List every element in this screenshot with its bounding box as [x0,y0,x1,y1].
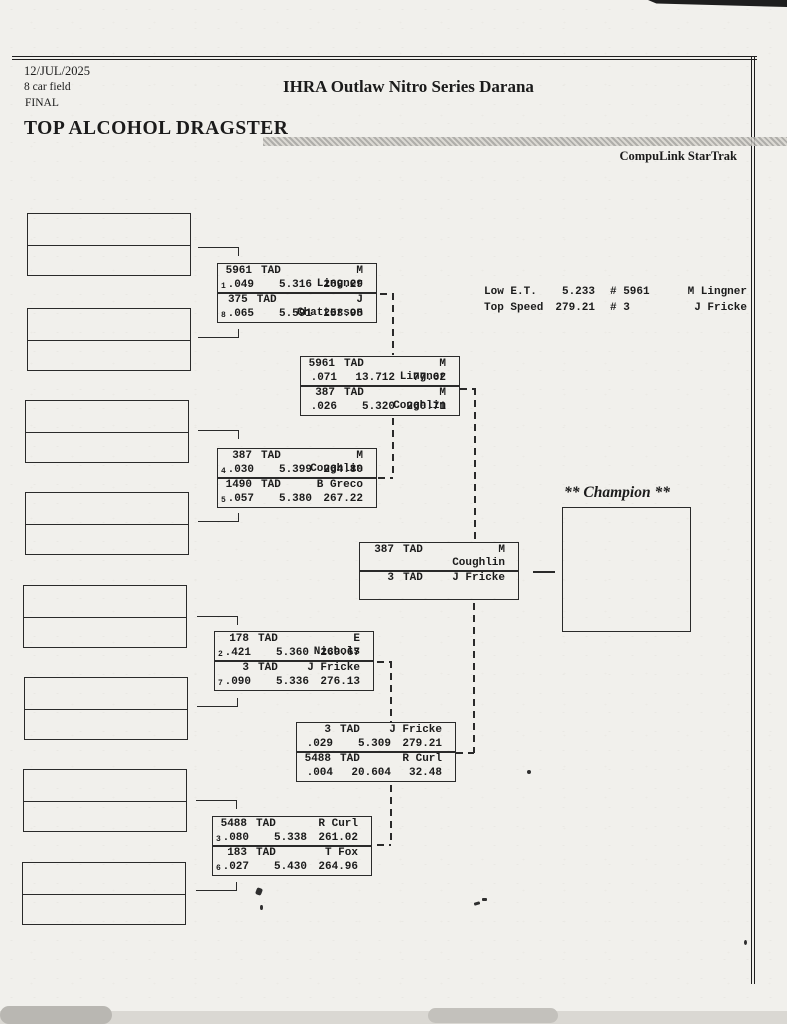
scan-speckle [255,887,263,896]
champion-box [562,507,691,632]
driver-name: M Coughlin [449,544,518,558]
trap-speed: 269.67 [309,647,373,661]
qf3-connector-dash [390,661,392,722]
driver-name: E Nichols [304,633,373,647]
round1-slot-5 [23,585,187,648]
low-et-row: Low E.T. 5.233 # 5961 M Lingner [484,285,747,301]
round1-slot-2 [27,308,191,371]
timing-system-label: CompuLink StarTrak [560,149,737,164]
scan-speckle [474,901,481,905]
round1-slot-upper [24,770,186,801]
round1-slot-upper [28,309,190,340]
qf2-connector-dash [378,477,393,479]
round1-slot-lower [28,340,190,371]
class-code: TAD [394,544,449,558]
low-et-car-number: # 5961 [610,285,662,301]
bracket-entry: 3TADJ Fricke .0905.336276.13 7 [214,660,374,691]
bracket-entry: 387TADM Coughlin [359,542,519,572]
car-number: 1490 [218,479,252,493]
round1-slot-lower [26,432,188,463]
reaction-time: .071 [301,372,337,386]
class-code: TAD [394,572,449,586]
elapsed-time: 5.360 [251,647,309,661]
round1-slot-6 [24,677,188,740]
bracket-entry: 3TADJ Fricke [359,570,519,600]
car-number: 5961 [218,265,252,279]
top-speed-row: Top Speed 279.21 # 3 J Fricke [484,301,747,317]
car-number: 3 [297,724,331,738]
round1-slot-upper [26,401,188,432]
bracket-entry: 178TADE Nichols .4215.360269.67 2 [214,631,374,662]
low-et-driver: M Lingner [662,285,747,301]
round1-slot-3 [25,400,189,463]
bracket-entry: 183TADT Fox .0275.430264.96 6 [212,845,372,876]
sf1-connector-dash [460,388,475,390]
class-code: TAD [247,818,302,832]
bottom-scan-edge [0,1011,787,1024]
driver-name: B Greco [307,479,376,493]
top-speed-car-number: # 3 [610,301,662,317]
car-number: 183 [213,847,247,861]
car-number: 375 [218,294,248,308]
class-code: TAD [335,387,390,401]
driver-name: J Fricke [386,724,455,738]
round1-connector-7 [196,800,237,809]
reaction-time: .029 [297,738,333,752]
bracket-entry: 387TADM Coughlin .0265.320260.71 [300,385,460,416]
driver-name: T Fox [302,847,371,861]
driver-name: J Chatterson [297,294,376,308]
round1-connector-4 [198,513,239,522]
elapsed-time: 5.591 [254,308,312,322]
driver-name: M Lingner [307,265,376,279]
top-speed-label: Top Speed [484,301,554,317]
seed-number: 1 [221,283,226,291]
bracket-entry: 375TADJ Chatterson .0655.591253.95 8 [217,292,377,323]
elapsed-time: 5.399 [254,464,312,478]
class-code: TAD [249,662,304,676]
round1-slot-7 [23,769,187,832]
round1-slot-upper [23,863,185,894]
champion-label: ** Champion ** [564,484,670,502]
class-code: TAD [248,294,297,308]
car-number: 387 [301,387,335,401]
round1-slot-lower [26,524,188,555]
round1-connector-5 [197,616,238,625]
round1-connector-1 [198,247,239,256]
trap-speed: 264.80 [312,464,376,478]
class-code: TAD [335,358,390,372]
elapsed-time: 13.712 [337,372,395,386]
sf2-connector-dash [473,603,475,753]
round1-slot-1 [27,213,191,276]
low-et-value: 5.233 [554,285,595,301]
bottom-scan-edge-blob [428,1008,558,1023]
trap-speed: 260.71 [395,401,459,415]
scan-speckle [260,905,263,910]
quarterfinal-match-3: 178TADE Nichols .4215.360269.67 2 3TADJ … [214,631,374,691]
seed-number: 8 [221,312,226,320]
final-match: 387TADM Coughlin 3TADJ Fricke [359,542,519,600]
round1-connector-8 [196,882,237,891]
field-size-label: 8 car field [24,81,71,93]
ladder-sheet-page: 12/JUL/2025 8 car field FINAL IHRA Outla… [0,0,787,1024]
class-title: TOP ALCOHOL DRAGSTER [24,118,288,140]
round1-slot-upper [28,214,190,245]
elapsed-time: 20.604 [333,767,391,781]
reaction-time: .004 [297,767,333,781]
trap-speed: 269.29 [312,279,376,293]
round1-slot-lower [24,617,186,648]
bracket-entry: 5961TADM Lingner .07113.71277.62 [300,356,460,387]
reaction-time: .026 [301,401,337,415]
car-number: 5961 [301,358,335,372]
bracket-entry: 5488TADR Curl .0805.338261.02 3 [212,816,372,847]
elapsed-time: 5.316 [254,279,312,293]
class-code: TAD [331,724,386,738]
round-label: FINAL [25,97,59,109]
trap-speed: 279.21 [391,738,455,752]
class-code: TAD [252,479,307,493]
round1-slot-upper [24,586,186,617]
round1-slot-4 [25,492,189,555]
elapsed-time: 5.430 [249,861,307,875]
car-number: 178 [215,633,249,647]
round1-slot-upper [26,493,188,524]
top-speed-driver: J Fricke [662,301,747,317]
seed-number: 6 [216,865,221,873]
sf1-connector-dash [474,388,476,542]
page-frame-right-rule [751,57,755,984]
driver-name: J Fricke [304,662,373,676]
scan-speckle [527,770,531,774]
class-code: TAD [331,753,386,767]
trap-speed: 264.96 [307,861,371,875]
seed-number: 4 [221,468,226,476]
round1-connector-3 [198,430,239,439]
qf1-connector-dash [392,293,394,355]
semifinal-match-2: 3TADJ Fricke .0295.309279.21 5488TADR Cu… [296,722,456,782]
round1-connector-6 [197,698,238,707]
car-number: 5488 [213,818,247,832]
class-title-divider-band [263,137,787,146]
car-number: 387 [218,450,252,464]
qf2-connector-dash [392,418,394,478]
low-et-label: Low E.T. [484,285,554,301]
trap-speed: 267.22 [312,493,376,507]
elapsed-time: 5.320 [337,401,395,415]
class-code: TAD [249,633,304,647]
seed-number: 2 [218,651,223,659]
class-code: TAD [252,265,307,279]
seed-number: 5 [221,497,226,505]
car-number: 387 [360,544,394,558]
elapsed-time: 5.309 [333,738,391,752]
event-title: IHRA Outlaw Nitro Series Darana [283,77,534,97]
trap-speed: 32.48 [391,767,455,781]
seed-number: 3 [216,836,221,844]
car-number: 5488 [297,753,331,767]
driver-name: R Curl [386,753,455,767]
round1-slot-lower [28,245,190,276]
scan-speckle [744,940,747,945]
bottom-scan-edge-blob [0,1006,112,1024]
semifinal-match-1: 5961TADM Lingner .07113.71277.62 387TADM… [300,356,460,416]
driver-name: R Curl [302,818,371,832]
driver-name: J Fricke [449,572,518,586]
bracket-entry: 1490TADB Greco .0575.380267.22 5 [217,477,377,508]
bracket-entry: 3TADJ Fricke .0295.309279.21 [296,722,456,753]
bracket-entry: 5488TADR Curl .00420.60432.48 [296,751,456,782]
elapsed-time: 5.380 [254,493,312,507]
bracket-entry: 5961TADM Lingner .0495.316269.29 1 [217,263,377,294]
driver-name: M Coughlin [390,387,459,401]
round1-slot-8 [22,862,186,925]
bracket-entry: 387TADM Coughlin .0305.399264.80 4 [217,448,377,479]
car-number: 3 [360,572,394,586]
session-stats: Low E.T. 5.233 # 5961 M Lingner Top Spee… [484,285,747,317]
round1-slot-lower [24,801,186,832]
trap-speed: 77.62 [395,372,459,386]
sf2-connector-dash [456,752,474,754]
quarterfinal-match-4: 5488TADR Curl .0805.338261.02 3 183TADT … [212,816,372,876]
qf4-connector-dash [377,844,391,846]
scan-speckle [482,898,487,901]
quarterfinal-match-1: 5961TADM Lingner .0495.316269.29 1 375TA… [217,263,377,323]
quarterfinal-match-2: 387TADM Coughlin .0305.399264.80 4 1490T… [217,448,377,508]
class-code: TAD [247,847,302,861]
final-to-champion-line [533,571,555,573]
round1-slot-lower [23,894,185,925]
round1-slot-lower [25,709,187,740]
driver-name: M Lingner [390,358,459,372]
elapsed-time: 5.336 [251,676,309,690]
driver-name: M Coughlin [307,450,376,464]
elapsed-time: 5.338 [249,832,307,846]
page-frame-top-rule [12,56,757,60]
event-date: 12/JUL/2025 [24,64,90,79]
qf3-connector-dash [377,661,391,663]
trap-speed: 276.13 [309,676,373,690]
trap-speed: 253.95 [312,308,376,322]
class-code: TAD [252,450,307,464]
trap-speed: 261.02 [307,832,371,846]
qf4-connector-dash [390,785,392,845]
car-number: 3 [215,662,249,676]
scan-artifact-top-edge [648,0,787,7]
round1-connector-2 [198,329,239,338]
round1-slot-upper [25,678,187,709]
top-speed-value: 279.21 [554,301,595,317]
seed-number: 7 [218,680,223,688]
